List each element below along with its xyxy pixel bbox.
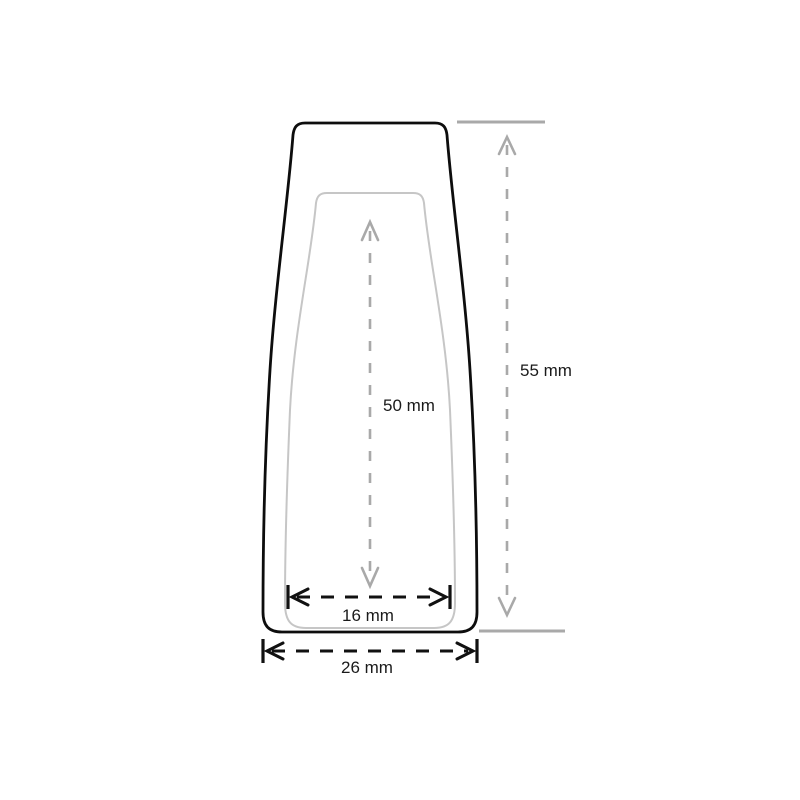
overall-height-dimension: 55 mm [457, 122, 572, 631]
outer-width-dimension: 26 mm [263, 639, 477, 677]
arrow-right-icon [430, 589, 446, 605]
arrow-down-icon [499, 598, 515, 615]
diagram-canvas: 55 mm 50 mm 16 mm 26 mm [0, 0, 800, 800]
inner-height-label: 50 mm [383, 396, 435, 415]
outer-profile-outline [263, 123, 477, 632]
cap-profile [263, 123, 477, 632]
outer-width-label: 26 mm [341, 658, 393, 677]
inner-width-dimension: 16 mm [288, 585, 450, 625]
inner-width-label: 16 mm [342, 606, 394, 625]
overall-height-label: 55 mm [520, 361, 572, 380]
technical-drawing-svg: 55 mm 50 mm 16 mm 26 mm [0, 0, 800, 800]
inner-height-dimension: 50 mm [362, 222, 435, 586]
